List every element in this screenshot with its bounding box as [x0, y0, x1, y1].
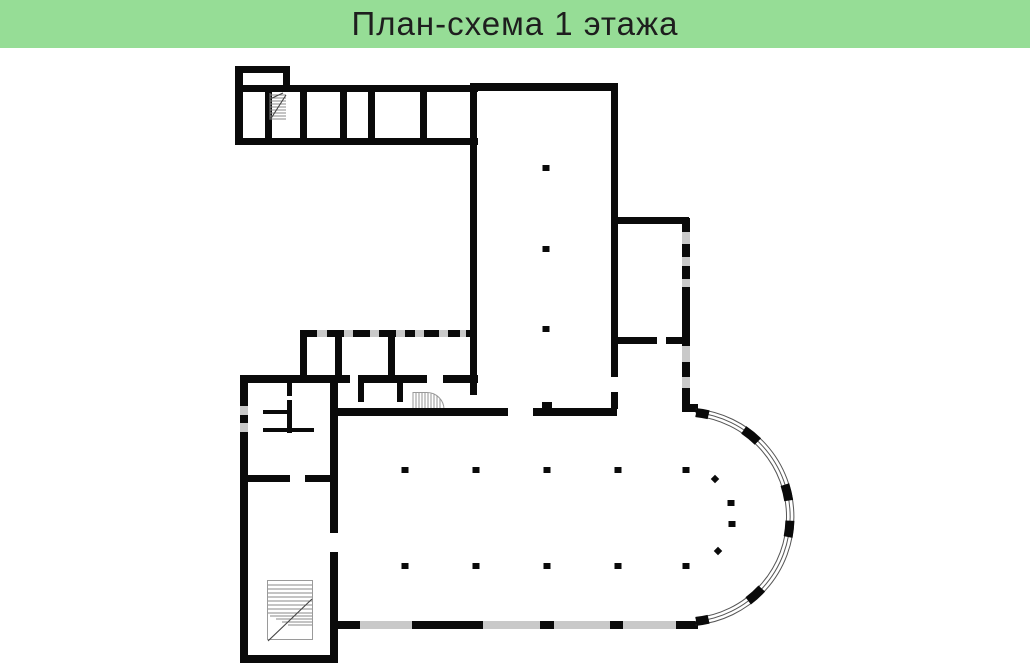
column-dot — [728, 500, 735, 506]
column-dot — [402, 467, 409, 473]
column-dot — [683, 563, 690, 569]
column-dot — [473, 563, 480, 569]
column-dot — [615, 467, 622, 473]
west-wing — [240, 375, 338, 663]
column-dot — [543, 326, 550, 332]
column-dot — [711, 475, 719, 483]
column-dot — [543, 165, 550, 171]
column-dot — [615, 563, 622, 569]
floor-plan-area — [0, 48, 1030, 668]
column-dot — [402, 563, 409, 569]
column-dot — [473, 467, 480, 473]
north-wing-rooms — [235, 66, 478, 145]
column-dot — [544, 467, 551, 473]
east-rooms — [611, 217, 698, 412]
entrance-vestibule — [300, 330, 478, 410]
column-dot — [683, 467, 690, 473]
stairwell-north-icon — [270, 93, 286, 120]
column-dot — [543, 246, 550, 252]
column-dot — [714, 547, 722, 555]
page-title: План-схема 1 этажа — [352, 5, 679, 43]
title-bar: План-схема 1 этажа — [0, 0, 1030, 48]
apse-glazing — [695, 409, 794, 625]
entry-steps-icon — [413, 393, 444, 410]
column-dot — [544, 563, 551, 569]
main-hall — [336, 402, 794, 629]
stairwell-west-icon — [268, 581, 313, 642]
column-dot — [729, 521, 736, 527]
floor-plan-svg — [0, 48, 1030, 668]
